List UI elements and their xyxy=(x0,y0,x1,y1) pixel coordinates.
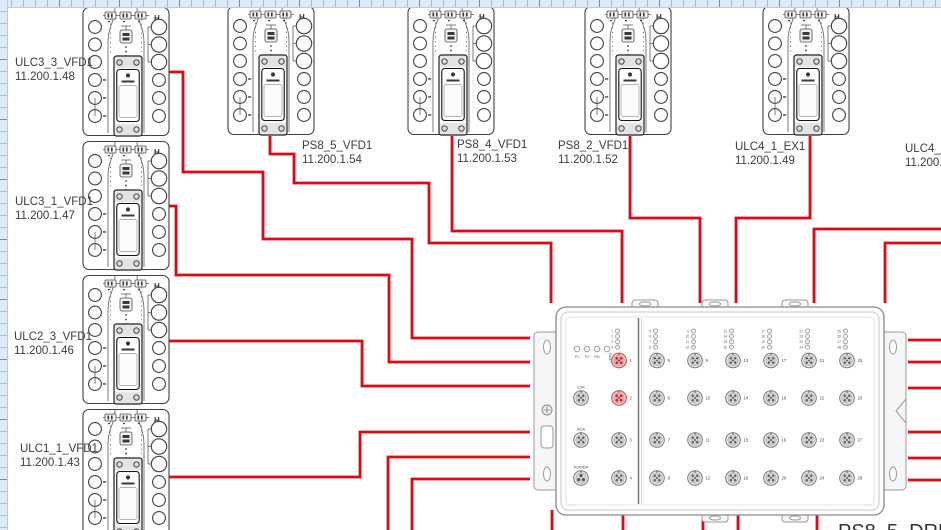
device-tag: ULC4_3_ xyxy=(905,142,941,156)
port-led xyxy=(654,345,658,349)
m12-port-19[interactable] xyxy=(764,432,779,447)
port-led xyxy=(654,329,658,333)
m12-port-3[interactable] xyxy=(612,432,627,447)
cable-7[interactable] xyxy=(885,243,941,303)
m12-port-12[interactable] xyxy=(688,470,703,485)
module-label: PS8_5_DRM1 xyxy=(838,521,941,530)
port-led xyxy=(768,340,772,344)
port-led xyxy=(616,345,620,349)
m12-port-24[interactable] xyxy=(802,470,817,485)
status-led-label: FAULT xyxy=(608,353,612,363)
port-led xyxy=(654,340,658,344)
power-port[interactable] xyxy=(574,470,589,485)
m12-port-15[interactable] xyxy=(726,432,741,447)
device-ip: 11.200.1.48 xyxy=(15,70,93,84)
device-label: ULC1_1_VFD111.200.1.43 xyxy=(20,442,98,470)
status-led-label: P1 xyxy=(575,355,579,359)
led-number: 1 xyxy=(611,329,613,333)
led-number: 17 xyxy=(761,329,765,333)
port-number: 13 xyxy=(744,358,749,363)
device-ip: 11.200.1.49 xyxy=(735,154,805,168)
m12-port-10[interactable] xyxy=(688,390,703,405)
port-number: 18 xyxy=(782,396,787,401)
device-label: ULC2_3_VFD111.200.1.46 xyxy=(14,330,92,358)
m12-port-26[interactable] xyxy=(840,390,855,405)
m12-port-13[interactable] xyxy=(726,353,741,368)
m12-port-7[interactable] xyxy=(650,432,665,447)
special-port-label: POWER xyxy=(574,465,589,470)
cable-9[interactable] xyxy=(169,341,530,386)
port-led xyxy=(768,334,772,338)
port-led xyxy=(692,334,696,338)
status-led-RM xyxy=(594,346,600,352)
led-number: 16 xyxy=(723,346,727,350)
led-number: 4 xyxy=(611,346,613,350)
m12-port-23[interactable] xyxy=(802,432,817,447)
status-led-label: RM xyxy=(594,355,599,359)
device-label: PS8_5_VFD111.200.1.54 xyxy=(302,139,372,167)
port-number: 11 xyxy=(706,438,711,443)
port-led xyxy=(844,334,848,338)
port-led xyxy=(844,340,848,344)
port-led xyxy=(616,340,620,344)
left-mounting-bracket xyxy=(534,332,559,490)
device-ip: 11.200.1.47 xyxy=(15,209,93,223)
cable-12[interactable] xyxy=(412,479,530,530)
port-led xyxy=(768,345,772,349)
port-led xyxy=(692,329,696,333)
device-label: PS8_4_VFD111.200.1.53 xyxy=(457,138,527,166)
m12-port-1[interactable] xyxy=(612,353,627,368)
device-tag: PS8_2_VFD1 xyxy=(558,139,628,153)
device-symbol-PS8_4_VFD1[interactable] xyxy=(408,7,494,136)
device-label: PS8_2_VFD111.200.1.52 xyxy=(558,139,628,167)
m12-port-2[interactable] xyxy=(612,390,627,405)
led-number: 15 xyxy=(723,340,727,344)
device-symbol-ULC4_1_EX1[interactable] xyxy=(763,7,849,136)
m12-port-27[interactable] xyxy=(840,432,855,447)
port-number: 10 xyxy=(706,396,711,401)
port-led xyxy=(616,329,620,333)
diagram-canvas[interactable]: H xyxy=(0,0,941,530)
device-tag: ULC4_1_EX1 xyxy=(735,140,805,154)
device-tag: ULC3_1_VFD1 xyxy=(15,195,93,209)
port-led xyxy=(730,340,734,344)
led-number: 2 xyxy=(611,335,613,339)
m12-port-17[interactable] xyxy=(764,353,779,368)
status-led-P2 xyxy=(584,346,590,352)
led-number: 9 xyxy=(687,329,689,333)
port-led xyxy=(806,345,810,349)
port-number: 21 xyxy=(820,358,825,363)
m12-port-16[interactable] xyxy=(726,470,741,485)
device-tag: PS8_4_VFD1 xyxy=(457,138,527,152)
m12-port-28[interactable] xyxy=(840,470,855,485)
port-number: 24 xyxy=(820,476,825,481)
device-label: ULC4_1_EX111.200.1.49 xyxy=(735,140,805,168)
port-number: 27 xyxy=(858,438,863,443)
right-mounting-bracket xyxy=(881,332,906,490)
1.2k-port[interactable] xyxy=(574,390,589,405)
aca-port[interactable] xyxy=(574,432,589,447)
m12-port-4[interactable] xyxy=(612,470,627,485)
m12-port-22[interactable] xyxy=(802,390,817,405)
device-tag: ULC2_3_VFD1 xyxy=(14,330,92,344)
led-number: 14 xyxy=(723,335,727,339)
m12-port-11[interactable] xyxy=(688,432,703,447)
port-number: 28 xyxy=(858,476,863,481)
port-led xyxy=(806,334,810,338)
led-number: 25 xyxy=(837,329,841,333)
port-led xyxy=(616,334,620,338)
port-number: 20 xyxy=(782,476,787,481)
led-number: 3 xyxy=(611,340,613,344)
port-led xyxy=(692,345,696,349)
cable-6[interactable] xyxy=(814,229,941,303)
m12-port-25[interactable] xyxy=(840,353,855,368)
device-ip: 11.200.1.43 xyxy=(20,456,98,470)
port-number: 16 xyxy=(744,476,749,481)
port-number: 22 xyxy=(820,396,825,401)
port-led xyxy=(730,329,734,333)
port-led xyxy=(654,334,658,338)
led-number: 8 xyxy=(649,346,651,350)
device-symbol-ULC3_3_VFD1[interactable] xyxy=(83,8,169,137)
device-symbol-PS8_2_VFD1[interactable] xyxy=(585,7,671,136)
port-led xyxy=(730,345,734,349)
device-label: ULC3_3_VFD111.200.1.48 xyxy=(15,56,93,84)
port-number: 23 xyxy=(820,438,825,443)
port-led xyxy=(692,340,696,344)
horizontal-ruler xyxy=(0,0,941,8)
port-led xyxy=(730,334,734,338)
led-number: 12 xyxy=(685,346,689,350)
led-number: 19 xyxy=(761,340,765,344)
port-number: 26 xyxy=(858,396,863,401)
device-ip: 11.200.1.53 xyxy=(457,152,527,166)
led-number: 10 xyxy=(685,335,689,339)
led-number: 22 xyxy=(799,335,803,339)
led-number: 26 xyxy=(837,335,841,339)
m12-port-18[interactable] xyxy=(764,390,779,405)
device-ip: 11.200.1.52 xyxy=(558,153,628,167)
status-led-FAULT xyxy=(604,346,610,352)
diagram-scene: H xyxy=(0,0,941,530)
led-number: 7 xyxy=(649,340,651,344)
device-label: ULC3_1_VFD111.200.1.47 xyxy=(15,195,93,223)
led-number: 21 xyxy=(799,329,803,333)
device-symbol-ULC3_1_VFD1[interactable] xyxy=(83,142,169,271)
led-number: 28 xyxy=(837,346,841,350)
m12-port-14[interactable] xyxy=(726,390,741,405)
device-ip: 11.200.1.54 xyxy=(302,153,372,167)
led-number: 5 xyxy=(649,329,651,333)
status-led-label: P2 xyxy=(585,355,589,359)
port-led xyxy=(806,340,810,344)
led-number: 27 xyxy=(837,340,841,344)
cable-11[interactable] xyxy=(388,457,530,530)
device-tag: ULC3_3_VFD1 xyxy=(15,56,93,70)
port-number: 14 xyxy=(744,396,749,401)
port-number: 15 xyxy=(744,438,749,443)
device-ip: 11.200.1.46 xyxy=(14,344,92,358)
m12-port-21[interactable] xyxy=(802,353,817,368)
device-label-clipped: ULC4_3_11.200.1 xyxy=(905,142,941,170)
m12-port-9[interactable] xyxy=(688,353,703,368)
port-led xyxy=(844,345,848,349)
led-number: 23 xyxy=(799,340,803,344)
special-port-label: ACA xyxy=(577,427,585,432)
vertical-ruler xyxy=(0,0,8,530)
device-tag: PS8_5_VFD1 xyxy=(302,139,372,153)
device-symbol-PS8_5_VFD1[interactable] xyxy=(228,7,314,136)
led-number: 11 xyxy=(686,340,690,344)
status-led-P1 xyxy=(574,346,580,352)
led-number: 18 xyxy=(761,335,765,339)
port-led xyxy=(806,329,810,333)
cable-10[interactable] xyxy=(169,432,530,477)
port-number: 17 xyxy=(782,358,787,363)
port-led xyxy=(768,329,772,333)
m12-port-20[interactable] xyxy=(764,470,779,485)
port-number: 25 xyxy=(858,358,863,363)
device-ip: 11.200.1 xyxy=(905,156,941,170)
led-number: 6 xyxy=(649,335,651,339)
device-symbol-ULC2_3_VFD1[interactable] xyxy=(83,276,169,405)
led-number: 13 xyxy=(723,329,727,333)
m12-port-8[interactable] xyxy=(650,470,665,485)
device-tag: ULC1_1_VFD1 xyxy=(20,442,98,456)
port-number: 19 xyxy=(782,438,787,443)
drm-distribution-module[interactable]: 1234567891011121314151617181920212223242… xyxy=(534,300,906,522)
cable-4[interactable] xyxy=(630,136,700,303)
led-number: 24 xyxy=(799,346,803,350)
led-number: 20 xyxy=(761,346,765,350)
m12-port-6[interactable] xyxy=(650,390,665,405)
port-led xyxy=(844,329,848,333)
special-port-label: 1.2K xyxy=(577,385,585,390)
port-number: 12 xyxy=(706,476,711,481)
m12-port-5[interactable] xyxy=(650,353,665,368)
